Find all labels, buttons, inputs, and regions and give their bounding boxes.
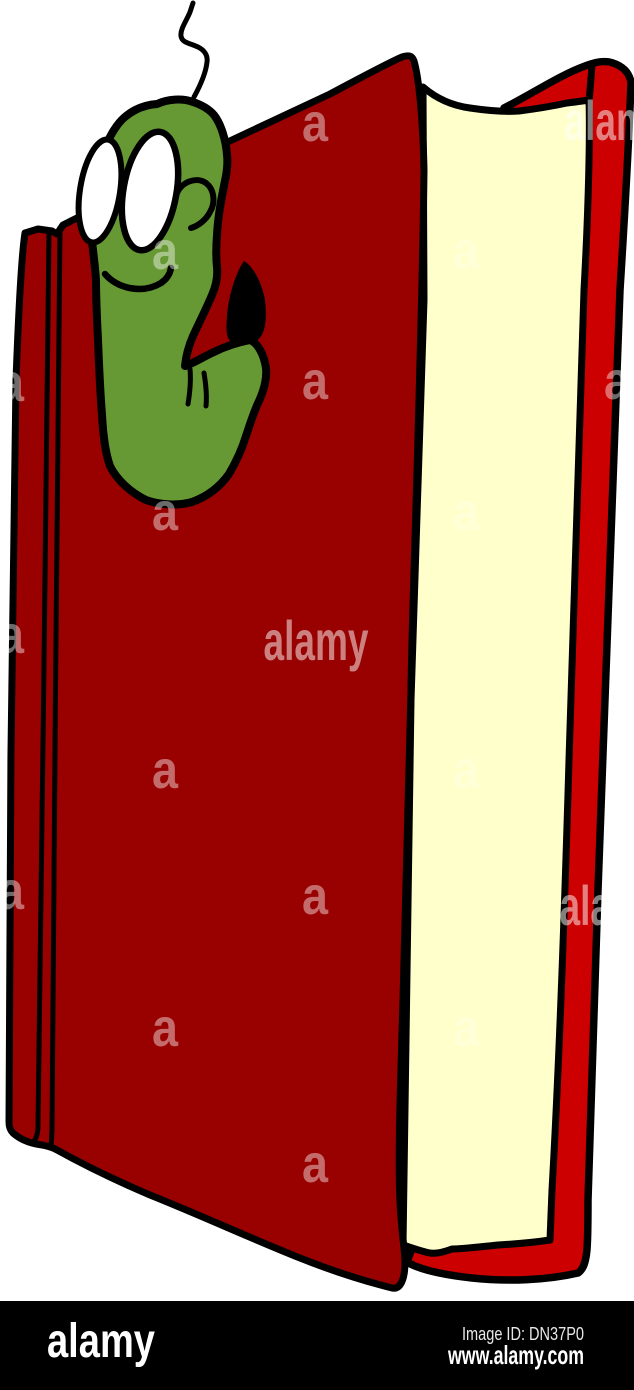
svg-text:a: a <box>453 221 480 281</box>
svg-text:a: a <box>302 93 329 153</box>
svg-text:a: a <box>152 740 179 800</box>
svg-text:alamy: alamy <box>47 1315 155 1368</box>
svg-text:a: a <box>0 861 25 921</box>
svg-text:a: a <box>453 740 480 800</box>
svg-text:a: a <box>604 351 631 411</box>
svg-text:a: a <box>0 353 25 413</box>
svg-text:a: a <box>302 866 329 926</box>
svg-text:alamy: alamy <box>560 874 634 937</box>
svg-text:a: a <box>152 998 179 1058</box>
svg-text:alamy: alamy <box>264 609 369 672</box>
svg-text:www.alamy.com: www.alamy.com <box>447 1340 584 1370</box>
svg-text:a: a <box>453 998 480 1058</box>
svg-text:a: a <box>302 351 329 411</box>
svg-text:a: a <box>152 482 179 542</box>
svg-text:alamy: alamy <box>565 89 634 152</box>
svg-text:a: a <box>453 482 480 542</box>
svg-text:a: a <box>302 1134 329 1194</box>
svg-text:a: a <box>0 605 25 665</box>
svg-text:a: a <box>152 221 179 281</box>
